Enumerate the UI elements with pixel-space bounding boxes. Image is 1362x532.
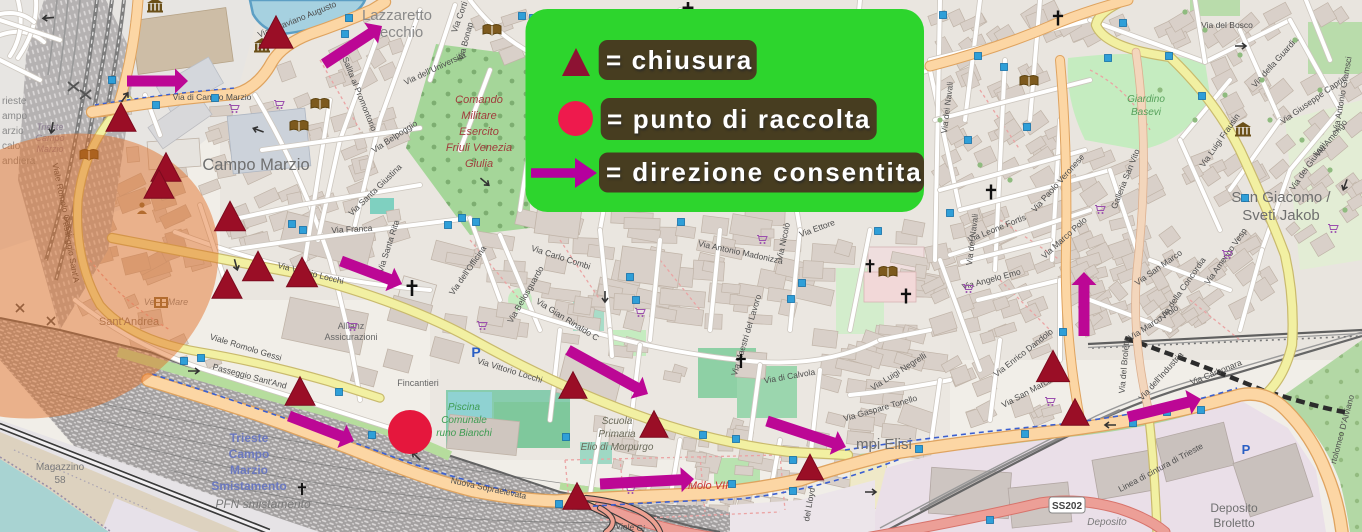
svg-text:58: 58 bbox=[54, 475, 66, 486]
svg-text:SS202: SS202 bbox=[1052, 501, 1082, 512]
svg-text:mpi Elisi: mpi Elisi bbox=[856, 436, 912, 453]
svg-text:Campo: Campo bbox=[229, 447, 270, 461]
svg-text:= punto di raccolta: = punto di raccolta bbox=[607, 104, 871, 134]
svg-text:Primaria: Primaria bbox=[598, 429, 636, 440]
svg-text:Trieste: Trieste bbox=[230, 431, 269, 445]
svg-text:Molo VII: Molo VII bbox=[688, 480, 728, 492]
svg-text:Giulia: Giulia bbox=[465, 158, 493, 170]
svg-text:Scuola: Scuola bbox=[602, 416, 633, 427]
svg-text:Magazzino: Magazzino bbox=[36, 462, 85, 473]
svg-text:P: P bbox=[1242, 442, 1251, 457]
svg-text:P: P bbox=[471, 344, 480, 360]
svg-text:Comunale: Comunale bbox=[441, 415, 487, 426]
svg-text:Viale Gi: Viale Gi bbox=[615, 521, 645, 532]
svg-text:Comando: Comando bbox=[455, 94, 503, 106]
svg-text:Fincantieri: Fincantieri bbox=[397, 378, 439, 388]
svg-text:Giardino: Giardino bbox=[1127, 94, 1165, 105]
svg-text:Deposito: Deposito bbox=[1210, 501, 1258, 515]
svg-text:Basevi: Basevi bbox=[1131, 107, 1162, 118]
svg-text:Via del Bosco: Via del Bosco bbox=[1201, 20, 1253, 30]
svg-text:Deposito: Deposito bbox=[1087, 517, 1127, 528]
svg-text:= direzione consentita: = direzione consentita bbox=[606, 157, 923, 187]
svg-text:Piscina: Piscina bbox=[448, 402, 481, 413]
svg-text:Assicurazioni: Assicurazioni bbox=[324, 332, 377, 342]
svg-text:runo Bianchi: runo Bianchi bbox=[436, 428, 492, 439]
svg-text:Marzio: Marzio bbox=[230, 463, 268, 477]
svg-text:Broletto: Broletto bbox=[1213, 516, 1255, 530]
svg-text:rieste: rieste bbox=[2, 96, 27, 107]
svg-text:Campo Marzio: Campo Marzio bbox=[202, 156, 309, 174]
svg-text:ampo: ampo bbox=[2, 111, 27, 122]
svg-text:Lazzaretto: Lazzaretto bbox=[362, 7, 432, 24]
svg-text:Elio di Morpurgo: Elio di Morpurgo bbox=[581, 442, 654, 453]
svg-text:Esercito: Esercito bbox=[459, 126, 499, 138]
svg-text:arzio: arzio bbox=[2, 126, 24, 137]
svg-text:Militare: Militare bbox=[461, 110, 496, 122]
svg-text:Smistamento: Smistamento bbox=[211, 479, 286, 493]
svg-text:Sveti Jakob: Sveti Jakob bbox=[1242, 207, 1320, 224]
svg-text:PFN smistamento: PFN smistamento bbox=[215, 497, 311, 511]
svg-text:Friuli Venezia: Friuli Venezia bbox=[446, 142, 512, 154]
svg-text:= chiusura: = chiusura bbox=[606, 45, 753, 75]
